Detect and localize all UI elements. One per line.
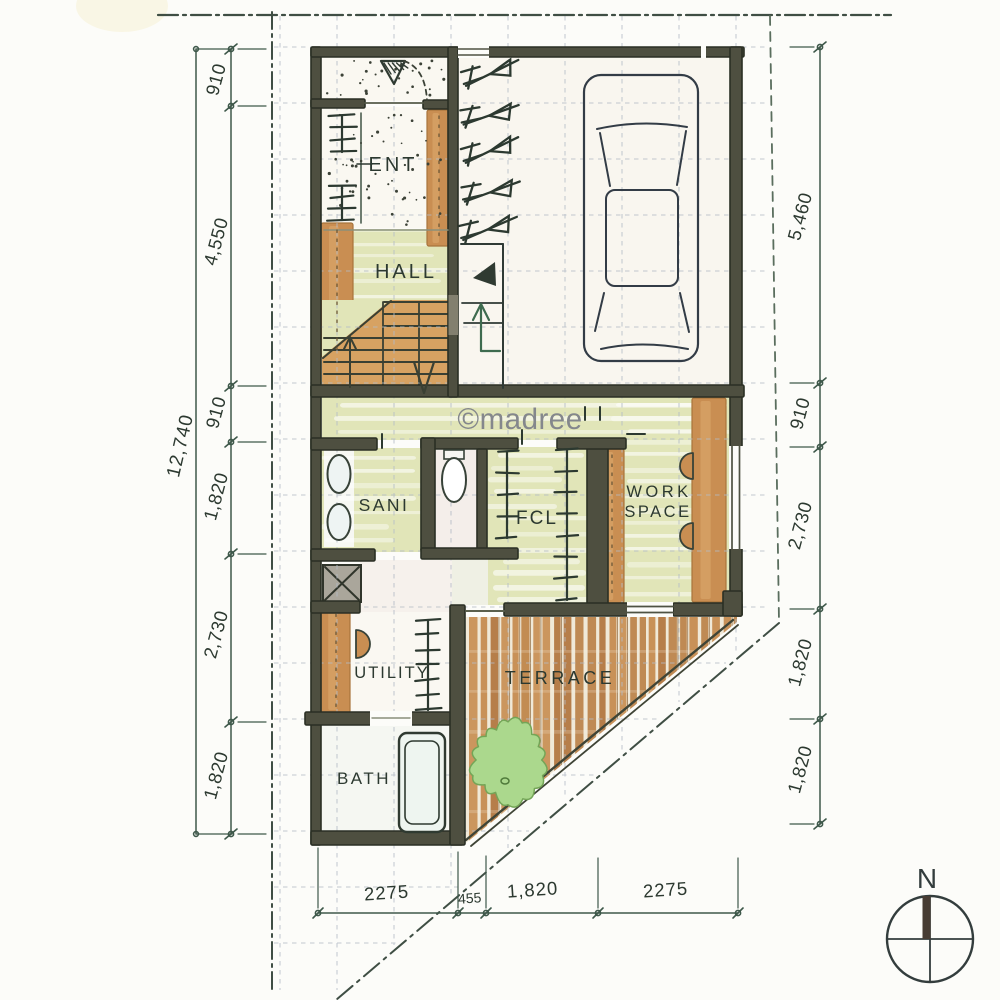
svg-text:FCL: FCL (516, 508, 558, 529)
svg-text:SANI: SANI (359, 495, 410, 515)
svg-text:©madree: ©madree (457, 403, 582, 436)
svg-text:2275: 2275 (642, 877, 689, 901)
svg-text:TERRACE: TERRACE (505, 668, 616, 688)
svg-text:SPACE: SPACE (624, 503, 691, 521)
svg-text:1,820: 1,820 (506, 877, 559, 902)
svg-text:ENT: ENT (369, 154, 418, 176)
svg-text:HALL: HALL (375, 261, 437, 283)
svg-text:N: N (917, 863, 937, 894)
svg-text:455: 455 (457, 889, 482, 907)
svg-text:WORK: WORK (626, 483, 691, 501)
svg-text:UTILITY: UTILITY (354, 664, 429, 682)
svg-text:BATH: BATH (337, 769, 391, 788)
svg-text:2275: 2275 (363, 880, 410, 904)
